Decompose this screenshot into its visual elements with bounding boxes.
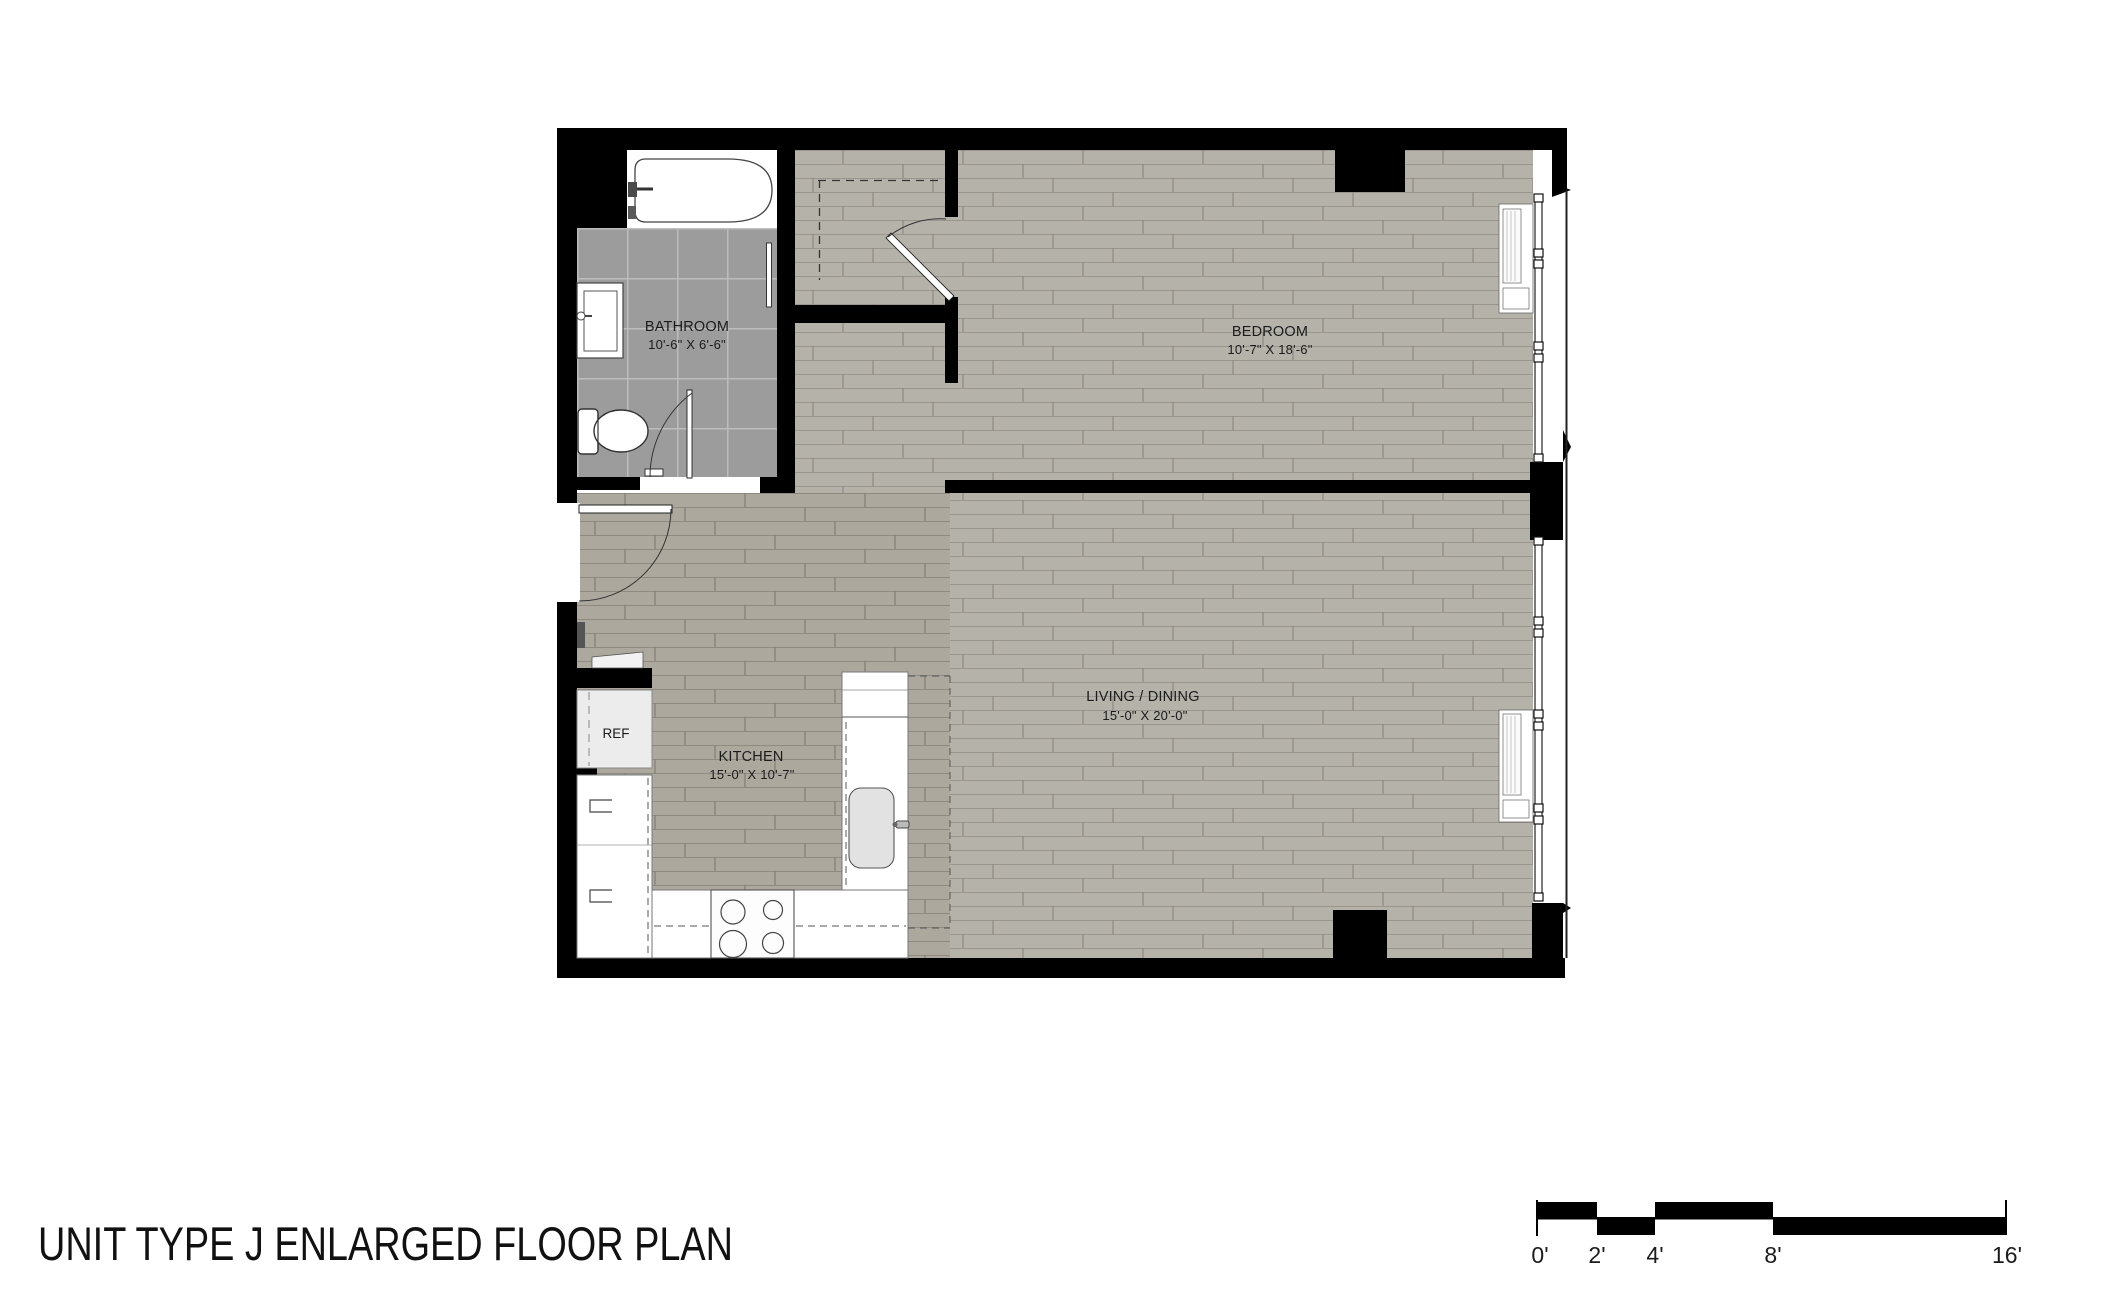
living-dining-label: LIVING / DINING [1086, 689, 1199, 705]
scale-label-0: 0' [1531, 1242, 1548, 1268]
stove-icon [711, 890, 794, 958]
floor-plan-page: BATHROOM 10'-6" X 6'-6" BEDROOM 10'-7" X… [0, 0, 2101, 1296]
left-counter [577, 775, 652, 958]
bedroom-label: BEDROOM [1232, 324, 1308, 340]
scale-segment-2-4 [1597, 1219, 1655, 1235]
wall-bedroom-door-stub-lower [945, 297, 958, 383]
entry-door-opening [552, 503, 580, 602]
wall-left-lower [557, 600, 577, 978]
scale-label-8: 8' [1764, 1242, 1781, 1268]
tub-drain-icon [628, 206, 636, 219]
floor-finishes [577, 150, 1533, 958]
bathroom-door-leaf [687, 390, 692, 478]
scale-bar: 0' 2' 4' 8' 16' [1531, 1200, 2022, 1268]
corner-block-top-right [1552, 128, 1567, 192]
living-plank-floor [950, 493, 1533, 958]
hall-nook-floor [795, 323, 945, 493]
kitchen-dimensions: 15'-0" X 10'-7" [709, 767, 794, 782]
bathtub-icon [635, 159, 772, 222]
scale-segment-8-16 [1773, 1219, 2007, 1235]
wall-bottom [557, 958, 1565, 978]
window-pier-mid [1530, 462, 1563, 540]
scale-label-16: 16' [1992, 1242, 2022, 1268]
bathroom-dimensions: 10'-6" X 6'-6" [648, 337, 726, 352]
page-title: UNIT TYPE J ENLARGED FLOOR PLAN [38, 1217, 733, 1270]
wall-bath-door-right [760, 477, 795, 493]
living-dining-dimensions: 15'-0" X 20'-0" [1102, 708, 1187, 723]
vanity-sink-icon [577, 283, 623, 358]
bedroom-window-glass [1535, 197, 1542, 462]
column-top [1335, 128, 1405, 192]
wall-bath-door-left [577, 477, 640, 490]
toilet-icon [578, 409, 648, 454]
corner-block-bottom-right [1532, 903, 1563, 977]
wall-ref-alcove-top [577, 668, 652, 688]
living-window-glass [1535, 540, 1542, 901]
scale-label-4: 4' [1646, 1242, 1663, 1268]
floor-plan-canvas: BATHROOM 10'-6" X 6'-6" BEDROOM 10'-7" X… [0, 0, 2101, 1296]
bedroom-dimensions: 10'-7" X 18'-6" [1227, 342, 1312, 357]
scale-tick-end [2005, 1200, 2007, 1219]
wall-top [557, 128, 1567, 150]
bathroom-threshold [645, 469, 663, 476]
wall-panel-icon [577, 622, 585, 648]
wall-closet-bottom [777, 305, 958, 323]
bathroom-label: BATHROOM [645, 319, 729, 335]
bedroom-radiator [1499, 204, 1533, 313]
column-bottom [1333, 910, 1387, 960]
wall-bedroom-living-divider [945, 480, 1532, 493]
refrigerator-label: REF [603, 726, 630, 741]
scale-segment-4-8 [1655, 1202, 1773, 1218]
scale-labels: 0' 2' 4' 8' 16' [1531, 1242, 2022, 1268]
bottom-counter [652, 890, 908, 958]
wall-left-upper [557, 128, 577, 505]
entry-door-leaf [579, 505, 672, 513]
scale-label-2: 2' [1588, 1242, 1605, 1268]
tub-faucet-icon [628, 182, 637, 197]
wall-bedroom-door-stub-upper [945, 128, 958, 217]
scale-segment-0-2 [1537, 1202, 1597, 1218]
kitchen-label: KITCHEN [718, 749, 783, 765]
towel-bar-icon [767, 243, 772, 307]
living-radiator [1499, 710, 1533, 822]
